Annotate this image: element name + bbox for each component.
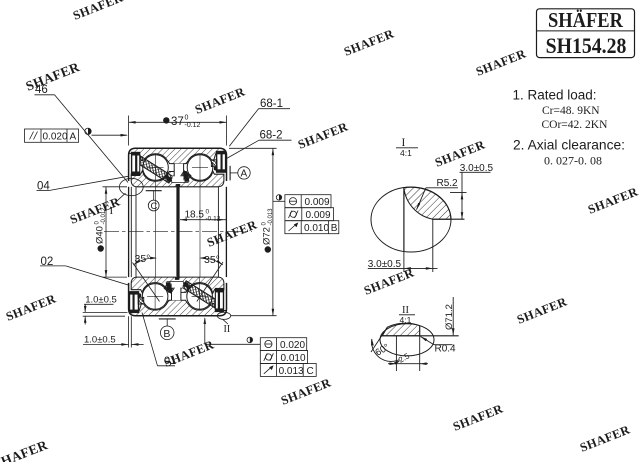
svg-text:SHAFER: SHAFER — [24, 59, 82, 94]
svg-text:2. Axial clearance:: 2. Axial clearance: — [513, 138, 625, 153]
svg-text:Ø71.2: Ø71.2 — [444, 304, 455, 330]
svg-text:0.009: 0.009 — [305, 197, 330, 208]
svg-text:A: A — [241, 169, 248, 180]
svg-text:68-1: 68-1 — [260, 98, 283, 110]
svg-text:0.009: 0.009 — [306, 210, 331, 221]
svg-text:SH154.28: SH154.28 — [546, 33, 627, 58]
svg-text:SHAFER: SHAFER — [362, 265, 417, 298]
svg-text:C: C — [151, 201, 158, 212]
svg-text:SHAFER: SHAFER — [4, 291, 59, 324]
svg-text:Ø40: Ø40 — [95, 226, 106, 244]
svg-text:SHAFER: SHAFER — [586, 184, 640, 217]
svg-text:COr=42. 2KN: COr=42. 2KN — [542, 119, 609, 131]
svg-text:0.020: 0.020 — [43, 132, 68, 143]
svg-text:46: 46 — [35, 84, 48, 96]
svg-text:0: 0 — [185, 115, 189, 122]
svg-text:SHÄFER: SHÄFER — [548, 9, 624, 32]
svg-text:-0.12: -0.12 — [206, 216, 221, 223]
svg-text:0: 0 — [95, 221, 101, 225]
svg-text:I: I — [110, 205, 114, 217]
svg-text:SHAFER: SHAFER — [451, 401, 506, 434]
svg-text:Ø72: Ø72 — [262, 227, 273, 245]
svg-text:0.010: 0.010 — [304, 223, 329, 234]
svg-text:SHAFER: SHAFER — [515, 294, 570, 327]
svg-text:4:1: 4:1 — [400, 148, 412, 158]
svg-text:SHAFER: SHAFER — [474, 46, 529, 79]
svg-text:A: A — [70, 132, 77, 143]
svg-text:SHAFER: SHAFER — [71, 0, 126, 23]
svg-text:SHAFER: SHAFER — [342, 26, 397, 59]
svg-text:2.5: 2.5 — [397, 351, 412, 365]
svg-text:SHAFER: SHAFER — [193, 84, 248, 117]
svg-text:37: 37 — [171, 116, 184, 128]
svg-text:B: B — [163, 328, 170, 340]
svg-text:-0.013: -0.013 — [268, 208, 274, 226]
svg-text:SHAFER: SHAFER — [0, 437, 50, 462]
svg-text:1.0±0.5: 1.0±0.5 — [85, 294, 117, 305]
svg-text:C: C — [307, 366, 314, 377]
svg-text:SHAFER: SHAFER — [296, 119, 351, 152]
svg-text:1. Rated load:: 1. Rated load: — [513, 88, 597, 103]
svg-text:II: II — [224, 324, 231, 335]
svg-text:0.010: 0.010 — [281, 353, 306, 364]
svg-text:-0.12: -0.12 — [185, 122, 201, 129]
svg-text:0.013: 0.013 — [279, 366, 304, 377]
svg-text:0.020: 0.020 — [280, 340, 305, 351]
svg-text:-0.012: -0.012 — [101, 207, 107, 225]
svg-text:SHAFER: SHAFER — [578, 422, 633, 455]
svg-text:B: B — [331, 223, 338, 234]
svg-text:SHAFER: SHAFER — [279, 375, 334, 408]
svg-text:18.5: 18.5 — [185, 210, 205, 221]
svg-text:0: 0 — [206, 209, 210, 216]
svg-text:0. 027-0. 08: 0. 027-0. 08 — [544, 154, 602, 168]
svg-text:0: 0 — [262, 222, 268, 226]
svg-text:Cr=48. 9KN: Cr=48. 9KN — [542, 105, 600, 117]
